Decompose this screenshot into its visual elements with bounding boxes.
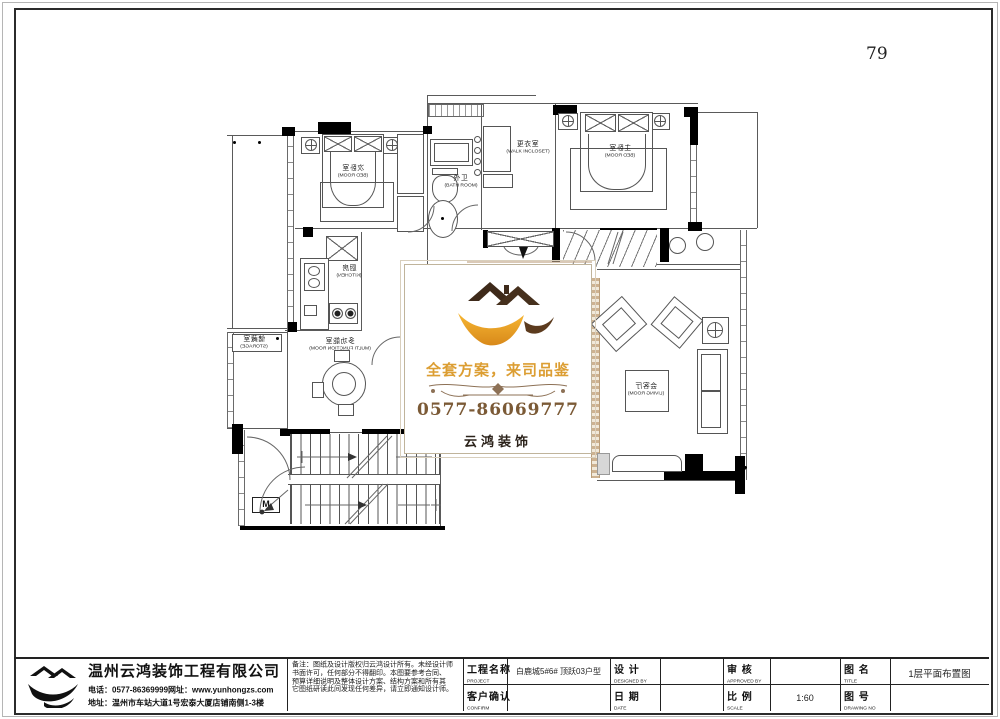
wall-line [227, 135, 287, 136]
bath-counter-inner [434, 143, 469, 162]
wall-segment [684, 107, 698, 117]
window-band [287, 131, 294, 330]
wall-line [227, 328, 290, 329]
closet-shelf [428, 104, 484, 117]
dining-table-inner [332, 372, 356, 396]
sink-bowl [308, 278, 320, 288]
stair-landing [288, 474, 440, 485]
titleblock-border [840, 657, 841, 711]
chair [334, 350, 350, 362]
lamp-icon [386, 139, 398, 151]
roof-line [697, 112, 758, 113]
marker-dot [744, 466, 747, 469]
pillow [585, 114, 616, 132]
lamp-icon [305, 139, 317, 151]
wardrobe [397, 196, 424, 232]
pillow [354, 136, 382, 152]
field-scale-value: 1:60 [770, 693, 840, 703]
lamp-icon [654, 115, 666, 127]
column-circle [669, 237, 686, 254]
marker-dot [233, 141, 236, 144]
company-address: 地址：温州市车站大道1号宏泰大厦店铺南侧1-3楼 [88, 696, 264, 708]
field-approved-label: 审 核 APPROVED BY [727, 661, 784, 687]
room-label-storage: 储藏室 (STORAGE) [211, 335, 298, 349]
titleblock-border [14, 657, 989, 659]
room-label-bedroom-left: 次卧室 (BED ROOM) [310, 164, 397, 178]
wall-line [555, 103, 556, 228]
company-name: 温州云鸿装饰工程有限公司 [88, 660, 280, 681]
titleblock-border [463, 657, 464, 711]
titleblock-border [610, 657, 611, 711]
field-title-value: 1层平面布置图 [890, 666, 989, 680]
pillar [597, 453, 610, 475]
wall-line [700, 228, 757, 229]
watermark-brand: 云鸿装饰 [405, 431, 591, 450]
room-label-living: 会客厅 (LIVING ROOM) [603, 382, 690, 396]
wall-segment [664, 471, 742, 480]
wall-line [227, 332, 287, 333]
lamp-icon [562, 115, 574, 127]
titleblock-border [723, 657, 724, 711]
field-confirm-label: 客户确认 CONFIRM [467, 688, 511, 714]
pillow [324, 136, 352, 152]
room-label-bedroom-master: 主卧室 (BED ROOM) [577, 144, 664, 158]
chair [338, 404, 354, 416]
wall-segment [688, 222, 702, 231]
wall-line [282, 131, 428, 132]
refrigerator [326, 236, 358, 261]
wall-line [757, 112, 758, 228]
watermark-slogan: 全套方案，来司品鉴 [405, 359, 591, 380]
stove-burner [345, 308, 356, 319]
wall-segment [240, 526, 445, 530]
company-phone: 电话：0577-86369999网址：www.yunhongzs.com [88, 683, 274, 695]
stove-burner [332, 308, 343, 319]
wall-line [597, 269, 740, 270]
stairs-up-hatch [563, 230, 657, 267]
wall-segment [685, 454, 703, 472]
floor-drain [304, 305, 317, 316]
wall-segment [318, 122, 351, 134]
watermark-box: 全套方案，来司品鉴 0577-86069777 云鸿装饰 [404, 264, 592, 454]
basin-drain [441, 217, 444, 220]
hall-cabinet [487, 231, 554, 247]
field-project-value: 白鹿城5#6# 顶跃03户型 [507, 666, 610, 677]
room-label-bathroom: 外卫 (BATH ROOM) [418, 174, 505, 188]
bench-sofa [612, 455, 682, 472]
stair-m-box: M [252, 497, 280, 513]
wall-line [597, 480, 742, 481]
wall-segment [303, 227, 313, 237]
chair [312, 382, 324, 398]
wall-segment [232, 424, 243, 454]
shoe-rack-circle [474, 147, 481, 154]
watermark-phone: 0577-86069777 [405, 400, 591, 420]
window-band [740, 230, 747, 480]
wall-segment [282, 127, 295, 136]
page-number: 79 [866, 44, 888, 64]
field-design-label: 设 计 DESIGNED BY [614, 661, 669, 687]
marker-dot [258, 141, 261, 144]
field-date-label: 日 期 DATE [614, 688, 640, 714]
room-label-walkin-closet: 更衣室 (WALK INCLOSET) [485, 140, 572, 154]
drawing-sheet: 79 [0, 0, 1000, 719]
field-drawing-label: 图 号 DRAWING NO [844, 688, 897, 714]
wall-line [232, 135, 233, 328]
wall-segment [423, 126, 432, 134]
titleblock-border [463, 684, 989, 685]
ornament-divider-icon [423, 379, 573, 399]
titleblock-border [287, 657, 288, 711]
shoe-rack-circle [474, 158, 481, 165]
wall-line [361, 232, 362, 330]
field-scale-label: 比 例 SCALE [727, 688, 753, 714]
wall-segment [288, 322, 297, 332]
field-title-label: 图 名 TITLE [844, 661, 870, 687]
wall-segment [690, 117, 698, 145]
stair-m-label: M [262, 499, 270, 509]
company-logo-icon [438, 273, 558, 353]
field-project-label: 工程名称 PROJECT [467, 661, 511, 687]
window-band [690, 145, 697, 228]
room-label-kitchen: 厨房 (KITCHEN) [306, 264, 393, 278]
shoe-rack-circle [474, 136, 481, 143]
column-circle [696, 233, 714, 251]
wall-line [481, 103, 482, 230]
pillow [618, 114, 649, 132]
lamp-icon [707, 322, 723, 338]
sofa-cushion [701, 391, 721, 428]
wall-segment [660, 228, 669, 262]
company-logo-small-icon [22, 662, 84, 708]
curtain-track [591, 278, 600, 478]
titleblock-notes: 备注：图纸及设计版权归云鸿设计所有。未经设计师 书面许可，任何部分不得翻印。本图… [292, 661, 460, 694]
roof-line [428, 95, 536, 96]
room-label-multi-function: 多功能室 (MULTI FUNCTION ROOM) [297, 337, 384, 351]
wall-segment [735, 456, 745, 494]
sofa-cushion [701, 354, 721, 391]
rug [320, 182, 394, 222]
